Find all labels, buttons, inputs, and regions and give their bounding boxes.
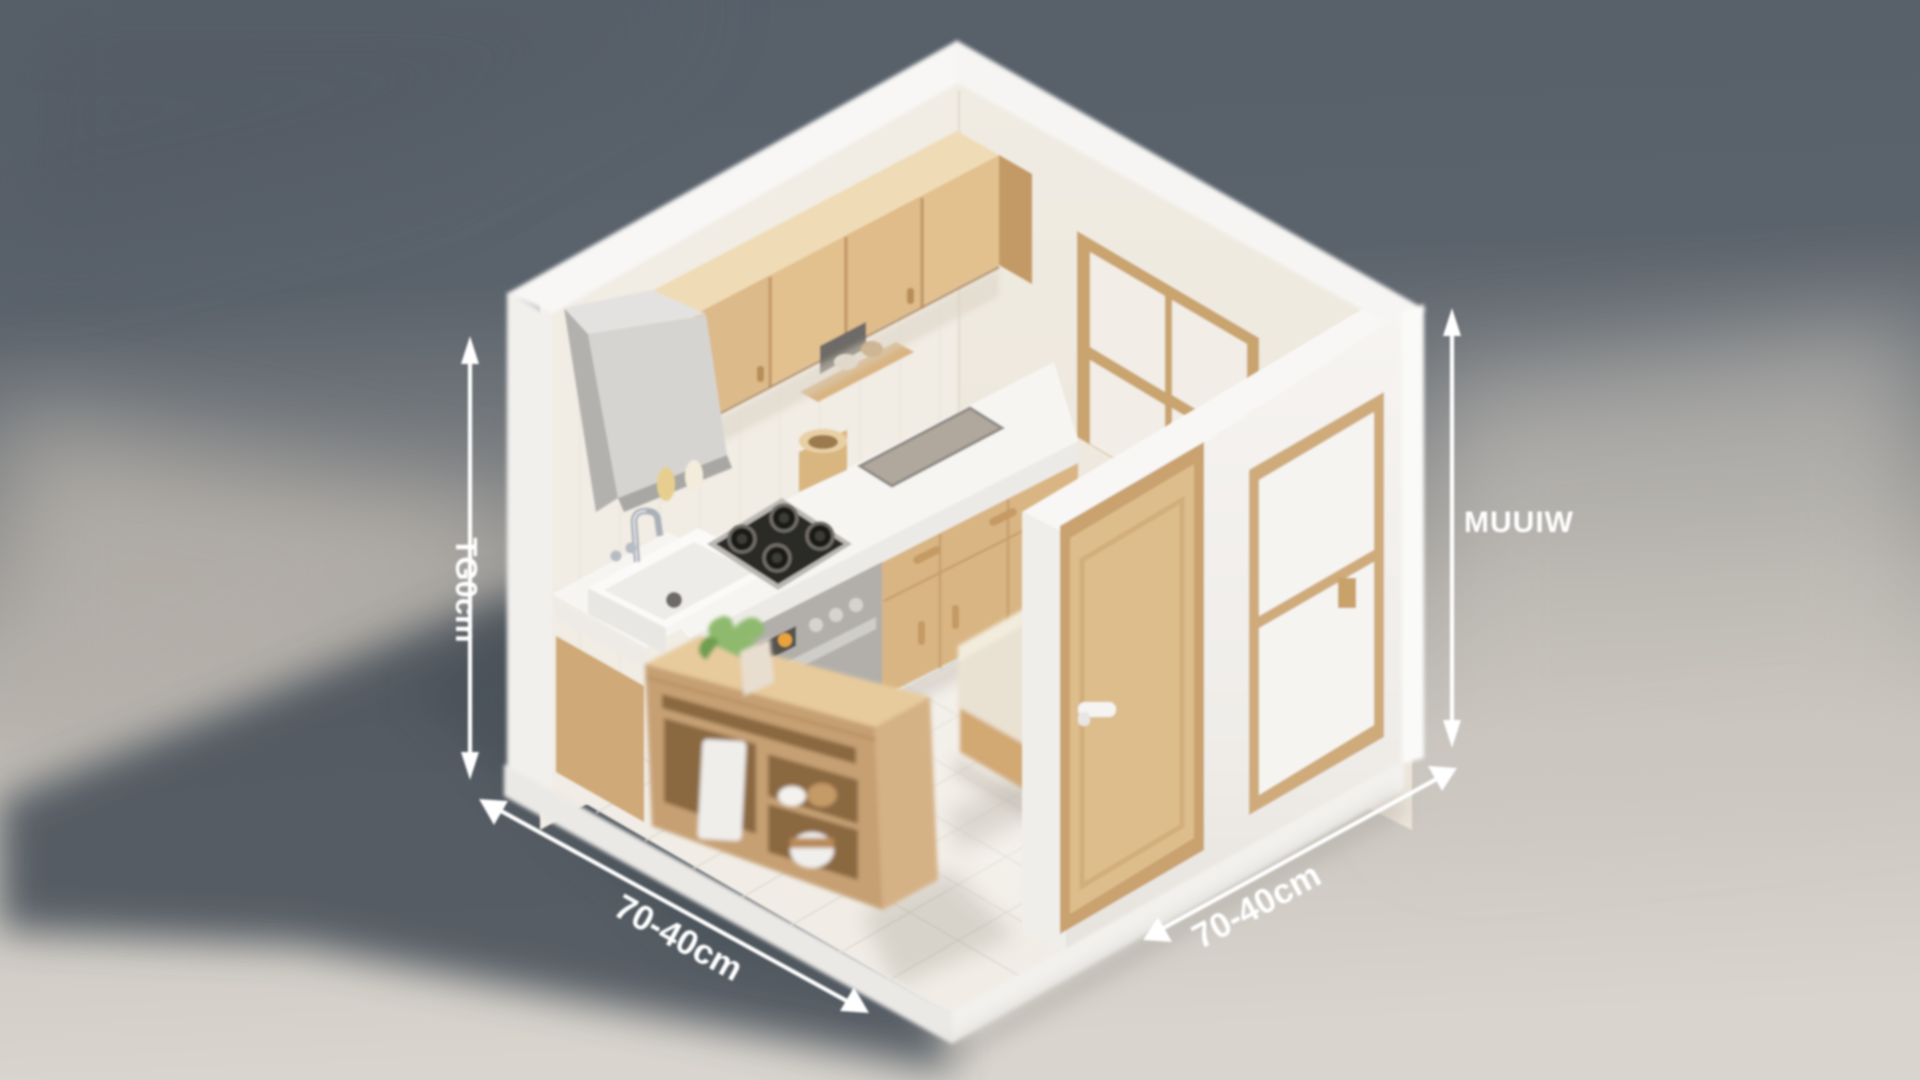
svg-text:TG0cm: TG0cm (449, 537, 484, 642)
svg-text:MUUIW: MUUIW (1464, 506, 1574, 539)
